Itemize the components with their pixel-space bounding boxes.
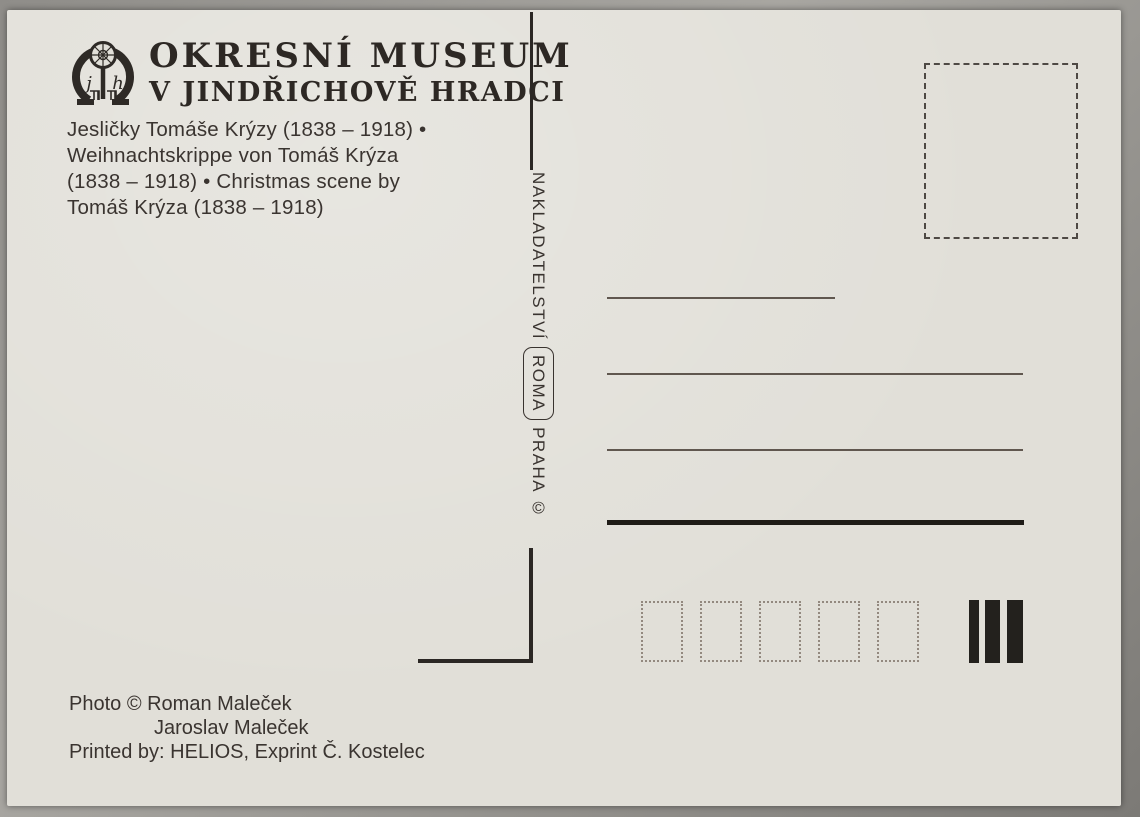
museum-name: OKRESNÍ MUSEUM	[149, 36, 573, 76]
postal-code-box	[641, 601, 683, 662]
caption: Jesličky Tomáše Krýzy (1838 – 1918) • We…	[67, 117, 426, 221]
stamp-box	[924, 63, 1078, 239]
museum-logo-icon: j h	[63, 36, 143, 118]
credits: Photo © Roman Maleček Jaroslav Maleček P…	[69, 692, 425, 764]
credit-photo: Photo © Roman Maleček	[69, 692, 425, 716]
publisher-imprint: NAKLADATELSTVÍROMAPRAHA ©	[519, 172, 557, 534]
postal-code-box	[759, 601, 801, 662]
address-line-4-thick	[607, 520, 1024, 525]
divider-line-bottom	[529, 548, 533, 662]
printer-mark-bars	[969, 600, 1023, 663]
address-line-1	[607, 297, 835, 299]
address-line-3	[607, 449, 1023, 451]
museum-city: V JINDŘICHOVĚ HRADCI	[149, 77, 565, 108]
divider-foot	[418, 659, 533, 663]
printer-bar	[985, 600, 1000, 663]
divider-line-top	[530, 12, 533, 170]
caption-line-4: Tomáš Krýza (1838 – 1918)	[67, 195, 426, 221]
printer-bar	[969, 600, 979, 663]
caption-line-3: (1838 – 1918) • Christmas scene by	[67, 169, 426, 195]
address-line-2	[607, 373, 1023, 375]
credit-photo-2: Jaroslav Maleček	[69, 716, 425, 740]
postcard-back: j h OKRESNÍ MUSEUM V JINDŘICHOVĚ HRADCI …	[7, 10, 1121, 806]
caption-line-1: Jesličky Tomáše Krýzy (1838 – 1918) •	[67, 117, 426, 143]
postal-code-box	[877, 601, 919, 662]
caption-line-2: Weihnachtskrippe von Tomáš Krýza	[67, 143, 426, 169]
publisher-brand: ROMA	[523, 347, 554, 420]
publisher-name: NAKLADATELSTVÍ	[529, 172, 548, 340]
credit-printer: Printed by: HELIOS, Exprint Č. Kostelec	[69, 740, 425, 764]
postal-code-boxes	[641, 601, 919, 662]
postal-code-box	[700, 601, 742, 662]
postal-code-box	[818, 601, 860, 662]
logo-letter-h: h	[112, 73, 124, 94]
printer-bar	[1007, 600, 1023, 663]
publisher-city: PRAHA ©	[529, 427, 548, 519]
